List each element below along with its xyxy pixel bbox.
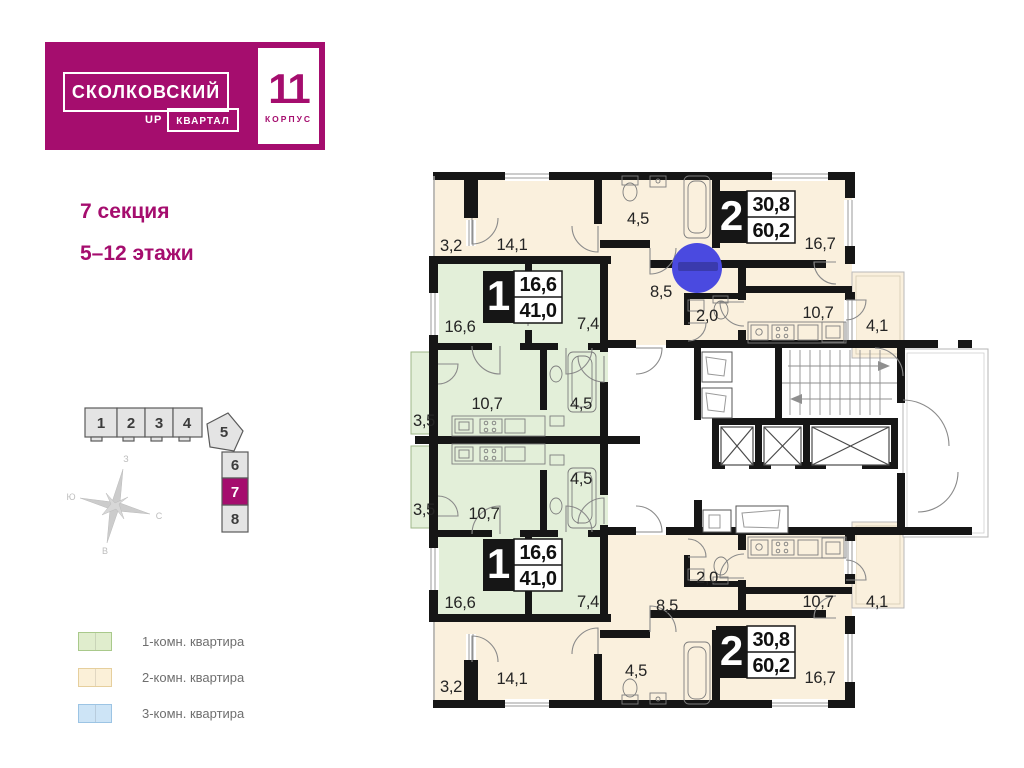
legend-label-3room: 3-комн. квартира	[142, 706, 244, 721]
legend-item-1room: 1-комн. квартира	[78, 632, 244, 651]
legend: 1-комн. квартира 2-комн. квартира 3-комн…	[78, 632, 244, 740]
label-kitchen-107g-top: 10,7	[472, 395, 503, 413]
svg-text:41,0: 41,0	[520, 568, 557, 590]
logo-title-box: СКОЛКОВСКИЙ	[63, 72, 229, 112]
label-bath-45g-bottom: 4,5	[570, 470, 592, 488]
apartment-badge-1-bottom[interactable]: 1 16,6 41,0	[483, 539, 562, 591]
legend-swatch-1room	[78, 632, 112, 651]
legend-item-3room: 3-комн. квартира	[78, 704, 244, 723]
svg-text:1: 1	[487, 540, 510, 587]
svg-text:60,2: 60,2	[753, 655, 790, 677]
label-hall-74-top: 7,4	[577, 315, 599, 333]
label-living-166-bottom: 16,6	[445, 594, 476, 612]
brand-logo: СКОЛКОВСКИЙ UP КВАРТАЛ 11 КОРПУС	[45, 42, 325, 150]
label-balcony-35-bottom: 3,5	[413, 501, 435, 519]
label-balcony-32-bottom: 3,2	[440, 678, 462, 696]
legend-item-2room: 2-комн. квартира	[78, 668, 244, 687]
label-living-167-bottom: 16,7	[805, 669, 836, 687]
apartment-badge-2-top[interactable]: 2 30,8 60,2	[716, 191, 795, 243]
section-heading: 7 секция 5–12 этажи	[80, 200, 194, 284]
compass-north: С	[156, 511, 163, 521]
svg-text:2: 2	[720, 192, 743, 239]
minimap-num-4: 4	[183, 415, 192, 432]
svg-text:60,2: 60,2	[753, 220, 790, 242]
brand-kvartal: КВАРТАЛ	[176, 116, 229, 127]
brand-up: UP	[145, 114, 162, 126]
label-living-166-top: 16,6	[445, 318, 476, 336]
label-hall-74-bottom: 7,4	[577, 593, 599, 611]
compass-west: З	[123, 454, 128, 464]
logo-subrow: UP КВАРТАЛ	[145, 108, 239, 132]
click-marker	[672, 243, 722, 293]
floors-range: 5–12 этажи	[80, 242, 194, 266]
label-living-167-top: 16,7	[805, 235, 836, 253]
label-kitchen-107g-bottom: 10,7	[469, 505, 500, 523]
vent-shafts	[702, 352, 732, 418]
label-bedroom-141-bottom: 14,1	[497, 670, 528, 688]
svg-text:41,0: 41,0	[520, 300, 557, 322]
section-title: 7 секция	[80, 200, 194, 224]
minimap-num-3: 3	[155, 415, 163, 432]
svg-text:30,8: 30,8	[753, 194, 790, 216]
label-wc-20-bottom: 2,0	[696, 569, 718, 587]
compass-south: Ю	[66, 492, 75, 502]
brand-kvartal-box: КВАРТАЛ	[167, 108, 238, 132]
label-bedroom-141-top: 14,1	[497, 236, 528, 254]
label-balcony-41-bottom: 4,1	[866, 593, 888, 611]
korpus-number: 11	[268, 68, 308, 110]
brand-name: СКОЛКОВСКИЙ	[72, 82, 220, 103]
stairs	[782, 350, 897, 415]
apartment-badge-2-bottom[interactable]: 2 30,8 60,2	[716, 626, 795, 678]
svg-text:2: 2	[720, 627, 743, 674]
label-balcony-41-top: 4,1	[866, 317, 888, 335]
minimap-num-1: 1	[97, 415, 105, 432]
korpus-label: КОРПУС	[265, 114, 312, 124]
svg-text:1: 1	[487, 272, 510, 319]
label-kitchen-107-top: 10,7	[803, 304, 834, 322]
minimap-svg: 1 2 3 4 5 6 7 8 З Ю С В	[55, 398, 265, 563]
legend-swatch-3room	[78, 704, 112, 723]
svg-text:30,8: 30,8	[753, 629, 790, 651]
minimap-num-5: 5	[220, 424, 228, 441]
compass-rose	[80, 469, 150, 543]
compass-east: В	[102, 546, 108, 556]
korpus-box: 11 КОРПУС	[258, 48, 319, 144]
label-balcony-32-top: 3,2	[440, 237, 462, 255]
label-kitchen-107-bottom: 10,7	[803, 593, 834, 611]
floor-plan-svg: 3,2 14,1 4,5 16,7 8,5 2,0 10,7 4,1 16,6 …	[405, 165, 1005, 710]
svg-text:16,6: 16,6	[520, 542, 557, 564]
label-balcony-35-top: 3,5	[413, 412, 435, 430]
label-bath-45g-top: 4,5	[570, 395, 592, 413]
legend-label-2room: 2-комн. квартира	[142, 670, 244, 685]
apartment-badge-1-top[interactable]: 1 16,6 41,0	[483, 271, 562, 323]
label-hall-85-top: 8,5	[650, 283, 672, 301]
minimap-num-8: 8	[231, 511, 239, 528]
svg-text:16,6: 16,6	[520, 274, 557, 296]
legend-swatch-2room	[78, 668, 112, 687]
fire-balcony	[903, 349, 988, 537]
utility-room	[703, 506, 788, 533]
minimap-num-7: 7	[231, 484, 239, 501]
floor-plan: 3,2 14,1 4,5 16,7 8,5 2,0 10,7 4,1 16,6 …	[405, 165, 1005, 710]
label-hall-85-bottom: 8,5	[656, 597, 678, 615]
legend-label-1room: 1-комн. квартира	[142, 634, 244, 649]
building-minimap: 1 2 3 4 5 6 7 8 З Ю С В	[55, 398, 265, 563]
label-bath-45-bottom: 4,5	[625, 662, 647, 680]
minimap-num-6: 6	[231, 457, 239, 474]
minimap-num-2: 2	[127, 415, 135, 432]
label-wc-20-top: 2,0	[696, 307, 718, 325]
label-bath-45-top: 4,5	[627, 210, 649, 228]
